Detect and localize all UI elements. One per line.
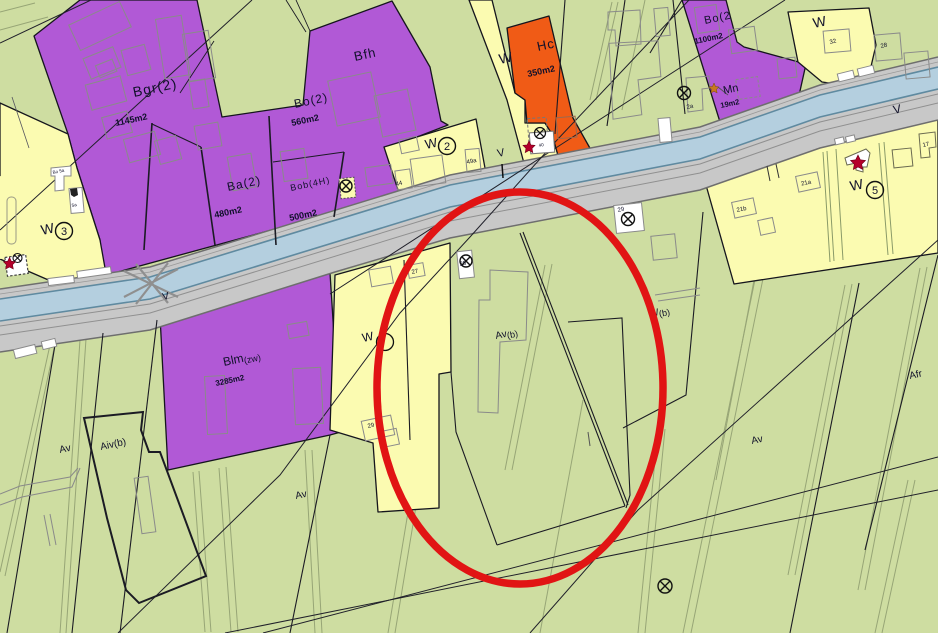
- svg-text:Av: Av: [294, 489, 308, 502]
- svg-text:Av: Av: [750, 434, 764, 447]
- svg-text:Av: Av: [58, 443, 72, 456]
- svg-text:2: 2: [444, 141, 450, 153]
- svg-text:5: 5: [872, 185, 878, 197]
- svg-text:3: 3: [61, 226, 67, 238]
